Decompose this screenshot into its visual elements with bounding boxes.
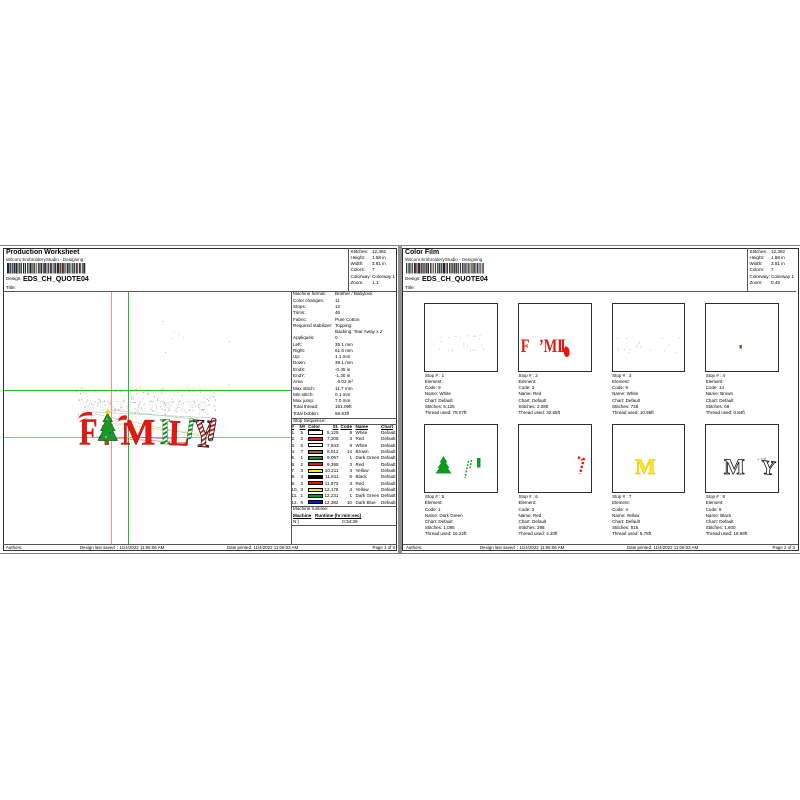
svg-text:’MI: ’MI — [539, 335, 563, 356]
svg-text:M: M — [635, 454, 656, 479]
svg-text:Y: Y — [760, 457, 777, 480]
svg-text:F: F — [521, 335, 530, 356]
svg-text:M: M — [724, 454, 745, 479]
